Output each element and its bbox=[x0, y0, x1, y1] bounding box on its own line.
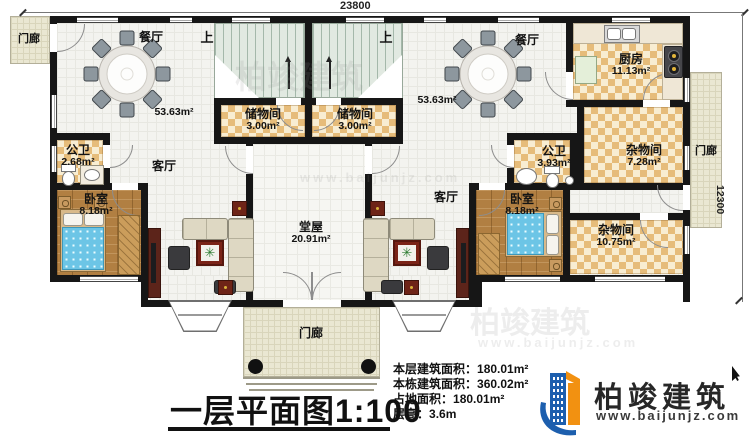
sink-icon bbox=[84, 169, 100, 181]
stairs-left-label: 上 bbox=[200, 31, 213, 46]
sofa-right-short bbox=[389, 218, 435, 240]
porch-bottom-label: 门廊 bbox=[299, 327, 323, 340]
living-left-label: 客厅 bbox=[152, 160, 176, 173]
bedroom-left-label: 卧室8.18m² bbox=[79, 193, 112, 218]
coffee-table-right: ✳ bbox=[393, 240, 421, 266]
corner-table bbox=[404, 280, 419, 295]
dimension-top: 23800 bbox=[340, 0, 371, 12]
wall-tv-right bbox=[469, 183, 476, 307]
porch-step bbox=[246, 383, 377, 385]
toilet-icon bbox=[546, 173, 559, 188]
dining-right-label: 餐厅 bbox=[515, 34, 539, 47]
sink-basin bbox=[622, 28, 636, 40]
wall-bath-left-top bbox=[50, 133, 110, 140]
side-unit-right bbox=[381, 280, 403, 294]
wardrobe-right bbox=[478, 233, 500, 275]
window bbox=[170, 17, 192, 23]
info-label: 占地面积： bbox=[393, 392, 453, 406]
wall-utility-a-left bbox=[577, 107, 584, 190]
info-value: 360.02m² bbox=[477, 377, 528, 391]
door-gap-porch-right bbox=[683, 185, 690, 210]
dining-left-area: 53.63m² bbox=[154, 107, 193, 119]
toilet-icon bbox=[62, 171, 75, 186]
info-label: 本栋建筑面积： bbox=[393, 377, 477, 391]
door-gap-utility-b bbox=[640, 213, 668, 220]
door-gap-utility-a bbox=[643, 100, 670, 107]
window bbox=[77, 17, 118, 23]
armchair-right bbox=[427, 246, 449, 270]
info-label: 本层建筑面积： bbox=[393, 362, 477, 376]
brand-url: www.baijunjz.com bbox=[596, 408, 740, 423]
watermark-url: www.baijunjz.com bbox=[300, 170, 460, 185]
storage-right-label: 储物间3.00m² bbox=[337, 108, 373, 133]
porch-step bbox=[243, 377, 380, 379]
door-gap-storage-right bbox=[316, 98, 341, 105]
plant-icon: ✳ bbox=[402, 246, 413, 259]
nightstand bbox=[549, 197, 562, 210]
double-door-leaf bbox=[311, 272, 313, 300]
wall-storage-top bbox=[214, 98, 403, 105]
info-value: 180.01m² bbox=[477, 362, 528, 376]
info-value: 3.6m bbox=[429, 407, 456, 421]
corner-table bbox=[218, 280, 233, 295]
bath-right-label: 公卫3.93m² bbox=[537, 145, 570, 170]
watermark-url: www.baijunjz.com bbox=[478, 335, 638, 350]
window bbox=[684, 78, 690, 102]
wall-kitchen-bottom bbox=[566, 100, 690, 107]
wardrobe-left bbox=[118, 215, 140, 275]
dining-left-label: 餐厅 bbox=[139, 31, 163, 44]
door-gap-hall-main bbox=[283, 300, 341, 307]
wall-tv-left bbox=[141, 183, 148, 307]
porch-top-left-label: 门廊 bbox=[18, 33, 40, 45]
coffee-table-left: ✳ bbox=[196, 240, 224, 266]
porch-bottom bbox=[243, 307, 380, 377]
stairs-right-label: 上 bbox=[379, 31, 392, 46]
bath-left-label: 公卫2.68m² bbox=[61, 144, 94, 169]
window bbox=[595, 276, 665, 282]
pillow bbox=[546, 235, 559, 255]
dimension-line-top bbox=[22, 12, 746, 13]
window bbox=[424, 17, 446, 23]
window bbox=[684, 146, 690, 170]
window bbox=[612, 17, 650, 23]
tv-left bbox=[151, 243, 156, 283]
window bbox=[80, 276, 138, 282]
bedroom-right-label: 卧室8.18m² bbox=[505, 193, 538, 218]
dimension-line-right bbox=[742, 12, 743, 302]
door-gap-bedroom-left bbox=[112, 183, 138, 190]
door-gap-storage-left bbox=[276, 98, 301, 105]
pillow bbox=[546, 214, 559, 234]
tv-right bbox=[461, 243, 466, 283]
corner-table bbox=[232, 201, 247, 216]
door-gap-bedroom-right bbox=[479, 183, 505, 190]
nightstand bbox=[549, 259, 562, 272]
window bbox=[498, 17, 539, 23]
sink-icon bbox=[516, 168, 537, 185]
info-value: 180.01m² bbox=[453, 392, 504, 406]
cursor-icon bbox=[732, 366, 743, 381]
window bbox=[51, 95, 57, 128]
bay-window-right bbox=[392, 300, 456, 332]
sink-basin bbox=[607, 28, 621, 40]
porch-right-label: 门廊 bbox=[695, 145, 717, 157]
nightstand bbox=[58, 196, 71, 209]
window bbox=[346, 17, 384, 23]
porch-column bbox=[248, 359, 263, 374]
watermark-brand: 柏竣建筑 bbox=[235, 52, 363, 98]
kitchen-label: 厨房11.13m² bbox=[612, 53, 651, 78]
floor-drain-icon bbox=[565, 176, 574, 185]
info-label: 层高： bbox=[393, 407, 429, 421]
wall-bath-right-top bbox=[507, 133, 577, 140]
plant-icon: ✳ bbox=[205, 246, 216, 259]
wall-storage-bottom bbox=[214, 137, 403, 144]
floor-plan: ✳ ✳ 柏竣建筑 www.baijunjz.com 柏竣建筑 www.ba bbox=[0, 0, 750, 441]
door-gap-bath-left bbox=[103, 145, 110, 168]
blanket-right bbox=[507, 213, 544, 255]
page-title: 一层平面图1:100 bbox=[170, 386, 422, 432]
window bbox=[51, 146, 57, 172]
living-right-label: 客厅 bbox=[434, 191, 458, 204]
stove-icon bbox=[664, 46, 683, 78]
fridge-icon bbox=[575, 56, 597, 84]
storage-left-label: 储物间3.00m² bbox=[245, 108, 281, 133]
wall-bedroom-right-side bbox=[563, 183, 570, 282]
window bbox=[684, 226, 690, 254]
window bbox=[232, 17, 270, 23]
bay-window-left bbox=[168, 300, 232, 332]
dimension-right: 12300 bbox=[714, 185, 726, 214]
dining-right-area: 53.63m² bbox=[417, 95, 456, 107]
brand-logo-icon bbox=[532, 368, 588, 440]
porch-column bbox=[361, 359, 376, 374]
door-gap-entry-left bbox=[50, 24, 57, 52]
window bbox=[505, 276, 560, 282]
armchair-left bbox=[168, 246, 190, 270]
blanket-left bbox=[62, 227, 104, 270]
utility-a-label: 杂物间7.28m² bbox=[626, 144, 662, 169]
sofa-left-short bbox=[182, 218, 228, 240]
title-underline bbox=[168, 427, 390, 431]
hall-label: 堂屋20.91m² bbox=[291, 221, 330, 246]
utility-b-label: 杂物间10.75m² bbox=[596, 224, 635, 249]
wall-utility-b-top bbox=[563, 213, 690, 220]
corner-table bbox=[370, 201, 385, 216]
